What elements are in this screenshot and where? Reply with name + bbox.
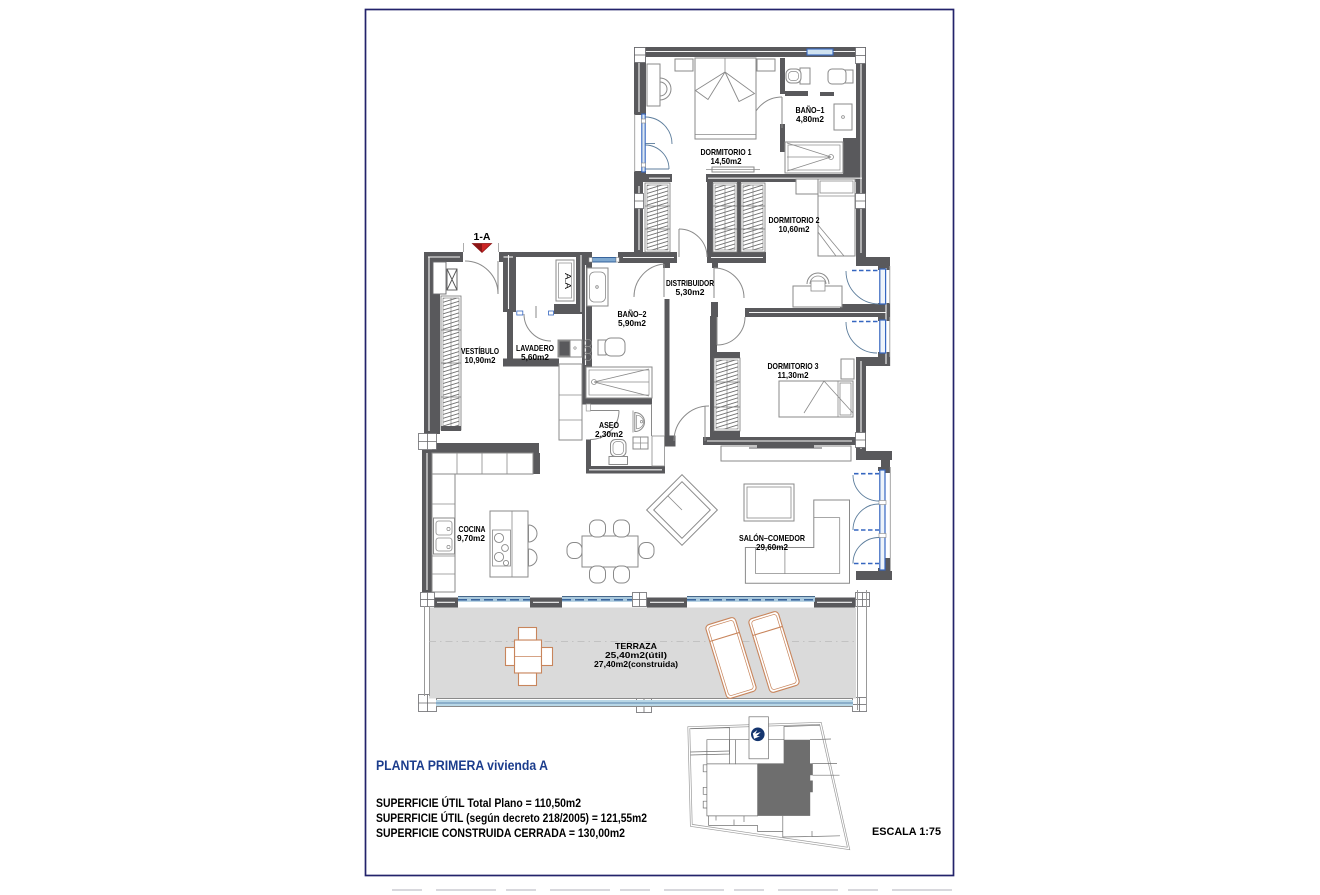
svg-text:SUPERFICIE ÚTIL (según decreto: SUPERFICIE ÚTIL (según decreto 218/2005)…	[376, 812, 647, 825]
svg-text:11,30m2: 11,30m2	[778, 370, 809, 380]
svg-text:10,60m2: 10,60m2	[779, 224, 810, 234]
svg-text:29,60m2: 29,60m2	[756, 542, 788, 552]
svg-text:ESCALA 1:75: ESCALA 1:75	[872, 826, 941, 838]
svg-text:SUPERFICIE ÚTIL Total Plano =: SUPERFICIE ÚTIL Total Plano = 110,50m2	[376, 797, 581, 810]
svg-text:14,50m2: 14,50m2	[711, 156, 742, 166]
svg-text:5,90m2: 5,90m2	[618, 318, 646, 328]
svg-text:9,70m2: 9,70m2	[457, 533, 485, 543]
svg-text:2,30m2: 2,30m2	[595, 429, 623, 439]
svg-text:1-A: 1-A	[474, 231, 491, 243]
svg-text:10,90m2: 10,90m2	[465, 355, 496, 365]
svg-text:5,60m2: 5,60m2	[521, 352, 549, 362]
svg-text:PLANTA PRIMERA vivienda A: PLANTA PRIMERA vivienda A	[376, 758, 548, 773]
svg-text:4,80m2: 4,80m2	[796, 114, 824, 124]
svg-text:SUPERFICIE CONSTRUIDA CERRADA: SUPERFICIE CONSTRUIDA CERRADA = 130,00m2	[376, 828, 625, 840]
svg-text:5,30m2: 5,30m2	[676, 287, 705, 297]
svg-text:A.A: A.A	[563, 273, 572, 290]
svg-text:27,40m2(construida): 27,40m2(construida)	[594, 659, 678, 669]
